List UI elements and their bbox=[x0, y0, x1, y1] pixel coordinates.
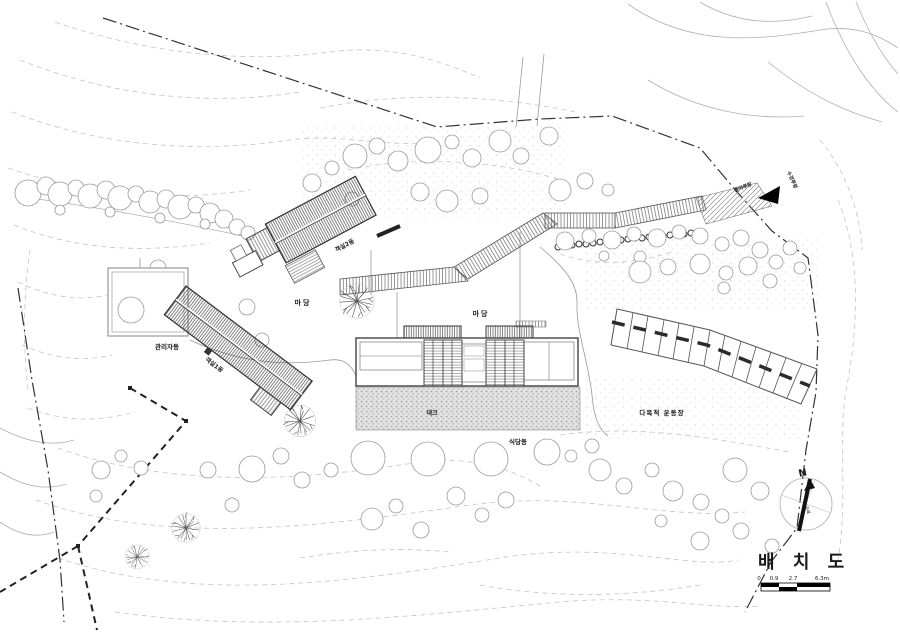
scale-bar: 0 0.9 2.7 6.3m bbox=[757, 576, 830, 591]
fence-line bbox=[0, 388, 186, 630]
scale-tick-1: 0.9 bbox=[770, 576, 779, 582]
label-guest2: 객실2동 bbox=[334, 237, 356, 254]
label-admin: 관리자동 bbox=[155, 342, 179, 351]
scale-tick-2: 2.7 bbox=[789, 576, 798, 582]
label-entry-side: 수경루랑 bbox=[785, 170, 799, 190]
site-plan-page: 관리자동 객실2동 객실1동 bbox=[0, 0, 900, 636]
label-north: N bbox=[798, 467, 808, 480]
scale-tick-3: 6.3m bbox=[815, 576, 829, 582]
label-deck: 데크 bbox=[426, 409, 438, 417]
building-guest1: 객실1동 bbox=[155, 286, 312, 423]
label-playground: 다목적 운동장 bbox=[639, 408, 684, 417]
drawing-title: 배 치 도 bbox=[758, 552, 850, 573]
label-yard-center: 마당 bbox=[473, 309, 490, 318]
retaining-wall bbox=[377, 226, 400, 236]
scale-tick-0: 0 bbox=[757, 576, 761, 582]
site-plan-canvas: 관리자동 객실2동 객실1동 bbox=[0, 0, 900, 636]
deck-area: 데크 bbox=[351, 387, 580, 476]
north-arrow: N 자북 bbox=[780, 467, 832, 531]
label-dining: 식당동 bbox=[509, 437, 527, 446]
label-yard-west: 마당 bbox=[295, 298, 312, 307]
title-block: 배 치 도 0 0.9 2.7 6.3m bbox=[757, 552, 850, 591]
